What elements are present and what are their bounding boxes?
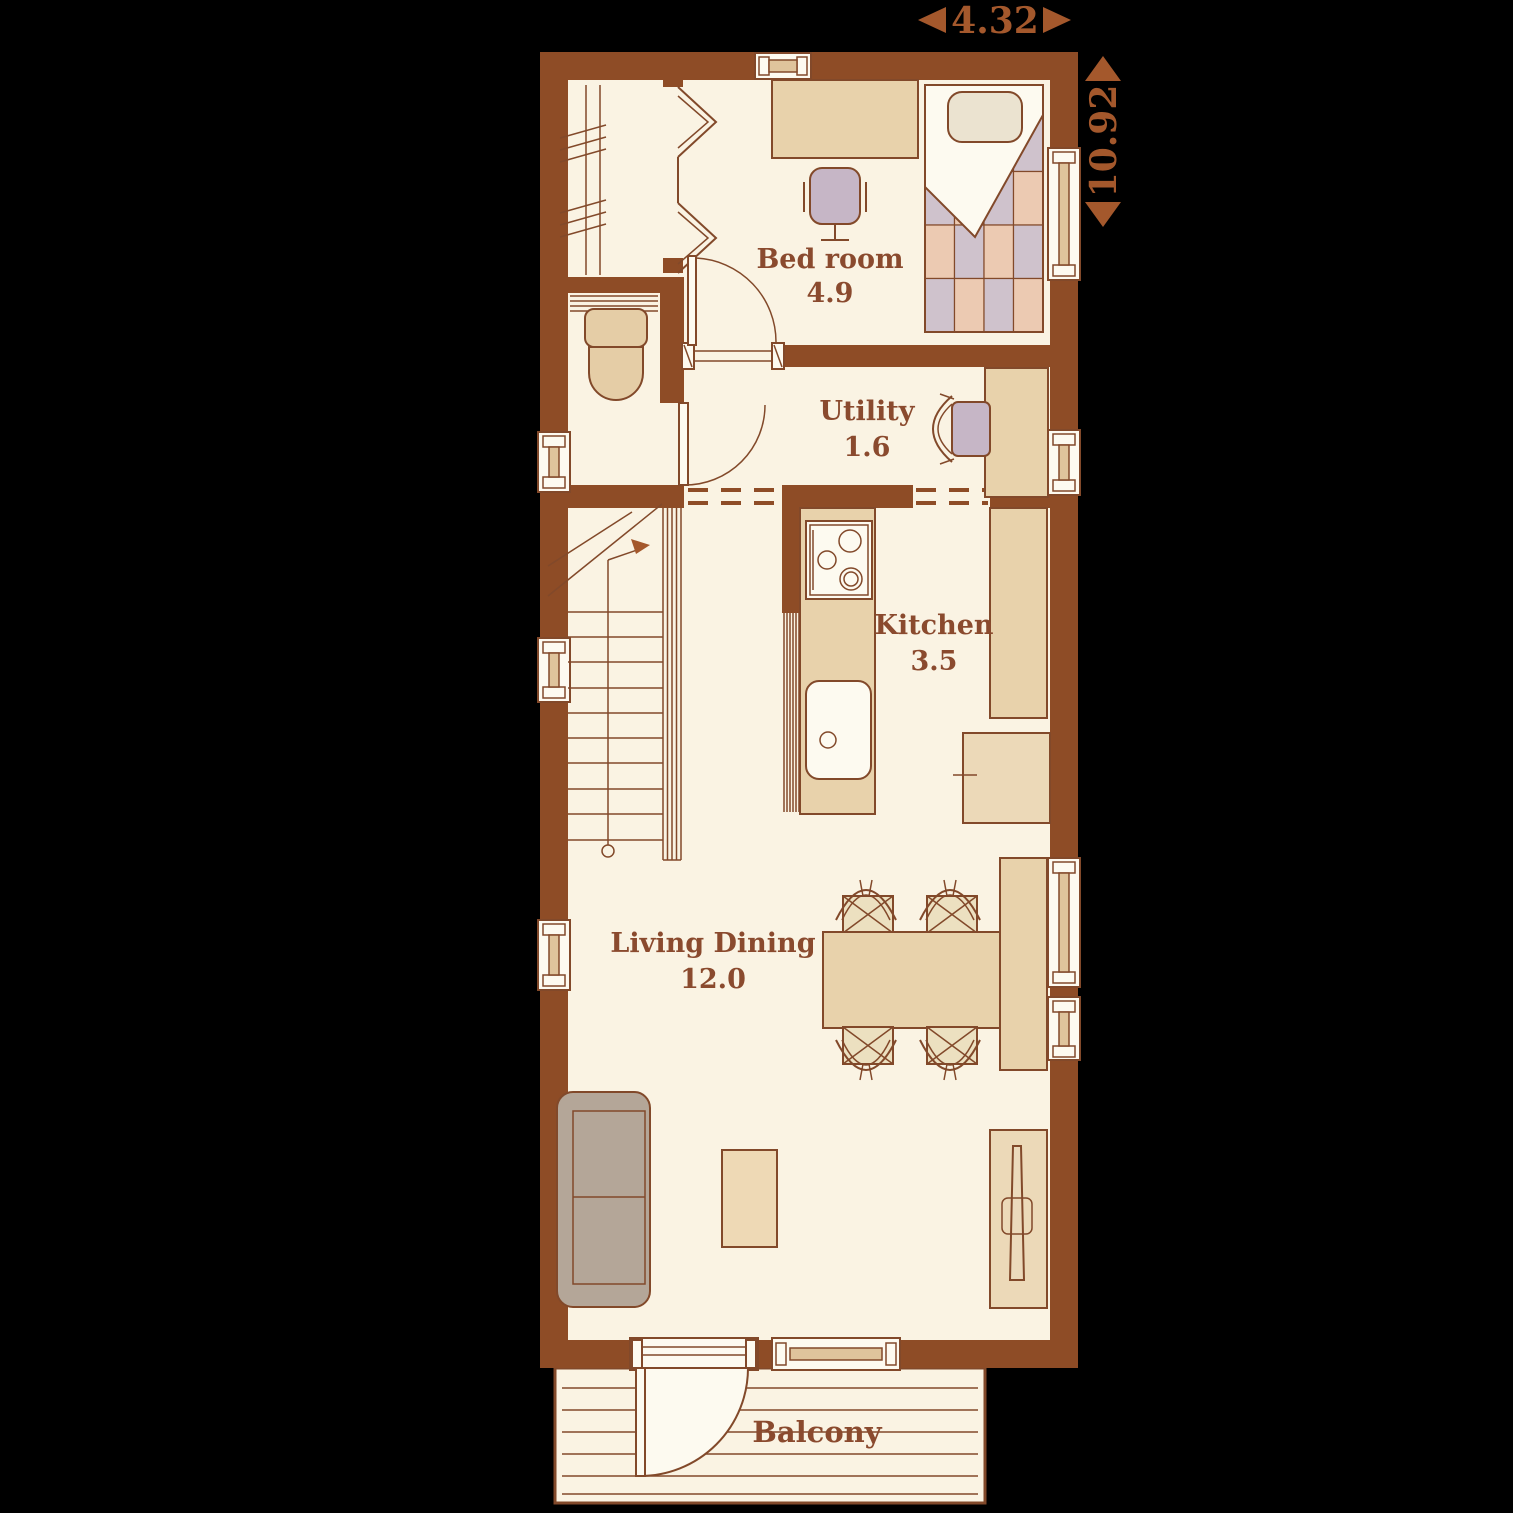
bedroom-size: 4.9 — [807, 278, 854, 309]
window-top — [755, 53, 811, 79]
refrigerator — [953, 733, 1050, 823]
window-utility — [1048, 430, 1080, 495]
dimension-width-value: 4.32 — [951, 0, 1039, 42]
balcony-door-frame — [630, 1338, 758, 1370]
dimension-horizontal: 4.32 — [918, 0, 1071, 42]
coffee-table — [722, 1150, 777, 1247]
toilet — [585, 309, 647, 400]
arrow-down-icon — [1085, 202, 1121, 227]
window-dining-short — [1048, 997, 1080, 1060]
window-toilet — [538, 432, 570, 492]
utility-label: Utility — [820, 396, 916, 427]
sofa — [557, 1092, 650, 1307]
window-living — [538, 920, 570, 990]
living-dining-size: 12.0 — [680, 964, 746, 995]
tv-board — [990, 1130, 1047, 1308]
kitchen-size: 3.5 — [911, 646, 958, 677]
arrow-up-icon — [1085, 56, 1121, 81]
dimension-vertical: 10.92 — [1083, 56, 1125, 227]
dining-counter — [1000, 858, 1047, 1070]
utility-size: 1.6 — [844, 432, 891, 463]
arrow-right-icon — [1043, 7, 1071, 33]
kitchen-cabinet — [990, 508, 1047, 718]
living-dining-label: Living Dining — [610, 928, 815, 959]
pillow — [948, 92, 1022, 142]
arrow-left-icon — [918, 7, 946, 33]
window-bottom — [772, 1338, 900, 1370]
bedroom-label: Bed room — [756, 244, 903, 275]
window-dining-tall — [1048, 858, 1080, 987]
bed — [925, 85, 1043, 332]
kitchen-label: Kitchen — [874, 610, 993, 641]
desk — [772, 80, 918, 158]
window-bedroom — [1048, 148, 1080, 280]
window-stairs — [538, 638, 570, 702]
tv — [1010, 1146, 1024, 1280]
sink — [806, 681, 871, 779]
balcony-label: Balcony — [752, 1415, 882, 1449]
utility-desk — [985, 368, 1048, 497]
floor-plan-canvas: Bed room 4.9 Utility 1.6 Kitchen 3.5 Liv… — [0, 0, 1513, 1513]
dining-table — [823, 932, 1000, 1028]
stove — [806, 521, 872, 599]
dimension-height-value: 10.92 — [1083, 85, 1125, 198]
